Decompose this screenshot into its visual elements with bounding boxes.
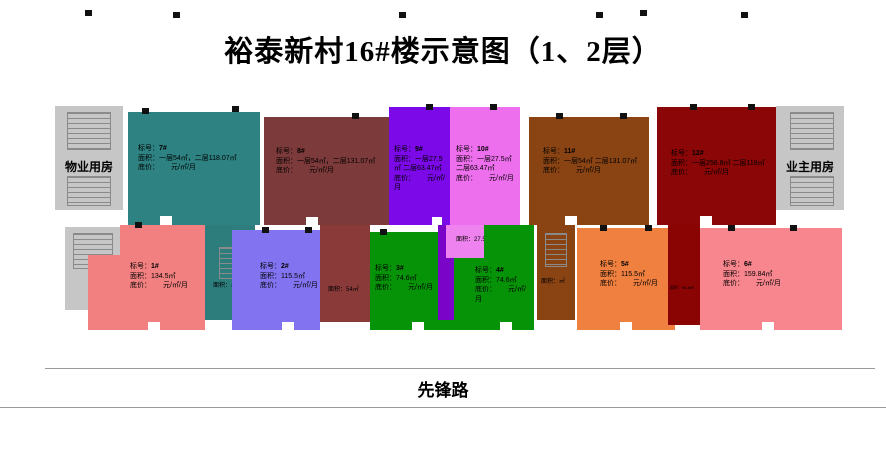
unit-id: 3#: [396, 265, 404, 272]
strip-area: ㎡: [559, 279, 565, 285]
unit-price-label: 底价：: [671, 169, 692, 176]
unit-area-label: 面积：: [723, 271, 744, 278]
unit-id: 10#: [477, 146, 489, 153]
window-mark: [135, 222, 142, 228]
window-mark: [85, 10, 92, 16]
unit-area: 一层54㎡，二层131.07㎡: [297, 158, 375, 165]
unit-price: 元/㎡/月: [408, 284, 433, 291]
unit-price: 元/㎡/月: [576, 167, 601, 174]
unit-block-2: 标号：2# 面积：115.5㎡ 底价：元/㎡/月: [232, 230, 320, 330]
unit-price-label: 底价：: [260, 282, 281, 289]
unit-area-label: 面积：: [138, 155, 159, 162]
unit-block-1-upper: [120, 225, 205, 257]
unit-id: 1#: [151, 263, 159, 270]
window-mark: [640, 10, 647, 16]
unit-block-7: 标号：7# 面积：一层54㎡，二层118.07㎡ 底价：元/㎡/月: [128, 112, 260, 225]
unit-price: 元/㎡/月: [633, 280, 658, 287]
window-mark: [305, 227, 312, 233]
unit-area: 74.6㎡: [496, 277, 517, 284]
window-mark: [748, 104, 755, 110]
window-mark: [596, 12, 603, 18]
door-opening: [306, 217, 318, 225]
owner-room-label: 业主用房: [776, 158, 844, 175]
unit-price-label: 底价：: [456, 175, 477, 182]
unit-price-label: 底价：: [723, 280, 744, 287]
window-mark: [490, 104, 497, 110]
door-opening: [565, 216, 577, 225]
unit-id: 7#: [159, 145, 167, 152]
window-mark: [142, 108, 149, 114]
unit-block-8: 标号：8# 面积：一层54㎡，二层131.07㎡ 底价：元/㎡/月: [264, 117, 390, 225]
unit-area-label: 面积：: [475, 277, 496, 284]
window-mark: [620, 113, 627, 119]
unit-block-12: 标号：12# 面积：一层256.8㎡ 二层118㎡ 底价：元/㎡/月: [657, 107, 776, 225]
door-opening: [148, 322, 160, 330]
unit-area: 74.6㎡: [396, 275, 417, 282]
unit-id: 9#: [415, 146, 423, 153]
area-strip-2-3: 面积：54㎡: [320, 225, 370, 322]
window-mark: [352, 113, 359, 119]
unit-block-11: 标号：11# 面积：一层54㎡ 二层131.07㎡ 底价：元/㎡/月: [529, 117, 649, 225]
unit-area-label: 面积：: [456, 156, 477, 163]
unit-id-label: 标号：: [394, 146, 415, 153]
unit-block-10: 标号：10# 面积：一层27.5㎡ 二层63.47㎡ 底价：元/㎡/月: [450, 107, 520, 225]
unit-block-1: 标号：1# 面积：134.5㎡ 底价：元/㎡/月: [88, 255, 205, 330]
door-opening: [160, 216, 172, 225]
unit-price: 元/㎡/月: [704, 169, 729, 176]
stairs-icon: [67, 176, 111, 206]
door-opening: [432, 217, 442, 225]
unit-area: 一层54㎡，二层118.07㎡: [159, 155, 237, 162]
unit-block-4: 标号：4# 面积：74.6㎡ 底价：元/㎡/月: [456, 258, 534, 330]
unit-id-label: 标号：: [475, 267, 496, 274]
unit-price-label: 底价：: [138, 164, 159, 171]
window-mark: [426, 104, 433, 110]
unit-price-label: 底价：: [375, 284, 396, 291]
window-mark: [232, 106, 239, 112]
owner-room-block: 业主用房: [776, 106, 844, 210]
window-mark: [741, 12, 748, 18]
unit-id-label: 标号：: [260, 263, 281, 270]
unit-price-label: 底价：: [276, 167, 297, 174]
area-strip-4-5: 面积：㎡: [537, 225, 575, 320]
unit-area-label: 面积：: [130, 273, 151, 280]
unit-id: 6#: [744, 261, 752, 268]
unit-area: 一层54㎡ 二层131.07㎡: [564, 158, 637, 165]
unit-price: 元/㎡/月: [756, 280, 781, 287]
unit-id-label: 标号：: [138, 145, 159, 152]
door-opening: [700, 216, 712, 225]
window-mark: [690, 104, 697, 110]
unit-area-label: 面积：: [671, 160, 692, 167]
property-room-block: 物业用房: [55, 106, 123, 210]
window-mark: [728, 225, 735, 231]
floorplan-canvas: 裕泰新村16#楼示意图（1、2层） 物业用房 标号：7# 面积：一层54㎡，二层…: [0, 0, 886, 451]
strip-area: 54㎡: [346, 287, 359, 293]
window-mark: [645, 225, 652, 231]
unit-block-6: 标号：6# 面积：159.84㎡ 底价：元/㎡/月: [700, 228, 842, 330]
unit-id-label: 标号：: [600, 261, 621, 268]
unit-id-label: 标号：: [276, 148, 297, 155]
unit-id-label: 标号：: [375, 265, 396, 272]
unit-area: 159.84㎡: [744, 271, 772, 278]
stairs-icon: [790, 176, 834, 206]
area-strip-5-6: 面积：96.8㎡: [668, 225, 700, 325]
road-line-bottom: [0, 407, 886, 408]
unit-id: 4#: [496, 267, 504, 274]
strip-area: 96.8㎡: [682, 286, 694, 291]
window-mark: [600, 225, 607, 231]
unit-price: 元/㎡/月: [293, 282, 318, 289]
window-mark: [173, 12, 180, 18]
unit-id: 11#: [564, 148, 575, 155]
strip-area-label: 面积：: [456, 237, 474, 243]
unit-block-9: 标号：9# 面积：一层27.5㎡ 二层63.47㎡ 底价：元/㎡/月: [389, 107, 450, 225]
strip-area-label: 面积：: [328, 287, 346, 293]
unit-id-label: 标号：: [543, 148, 564, 155]
door-opening: [620, 322, 632, 330]
unit-area: 115.5㎡: [621, 271, 645, 278]
unit-price: 元/㎡/月: [489, 175, 514, 182]
unit-area: 134.5㎡: [151, 273, 176, 280]
property-room-label: 物业用房: [55, 158, 123, 175]
unit-id-label: 标号：: [456, 146, 477, 153]
road-label: 先锋路: [0, 376, 886, 401]
strip-area-label: 面积：: [213, 283, 231, 289]
unit-price-label: 底价：: [394, 175, 415, 182]
door-opening: [762, 322, 774, 330]
unit-id-label: 标号：: [723, 261, 744, 268]
unit-area-label: 面积：: [394, 156, 415, 163]
unit-price: 元/㎡/月: [309, 167, 334, 174]
unit-area-label: 面积：: [375, 275, 396, 282]
unit-id: 8#: [297, 148, 305, 155]
page-title: 裕泰新村16#楼示意图（1、2层）: [0, 28, 886, 70]
unit-id: 2#: [281, 263, 289, 270]
stairs-icon: [67, 112, 111, 150]
window-mark: [399, 12, 406, 18]
unit-area: 115.5㎡: [281, 273, 305, 280]
unit-id: 5#: [621, 261, 629, 268]
unit-area-label: 面积：: [600, 271, 621, 278]
door-opening: [282, 322, 294, 330]
road-line-top: [45, 368, 875, 369]
window-mark: [556, 113, 563, 119]
strip-area-label: 面积：: [541, 279, 559, 285]
unit-area: 一层256.8㎡ 二层118㎡: [692, 160, 765, 167]
window-mark: [380, 229, 387, 235]
unit-area-label: 面积：: [260, 273, 281, 280]
door-opening: [500, 322, 512, 330]
door-opening: [412, 322, 424, 330]
window-mark: [262, 227, 269, 233]
unit-block-5: 标号：5# 面积：115.5㎡ 底价：元/㎡/月: [577, 228, 675, 330]
unit-area-label: 面积：: [276, 158, 297, 165]
unit-price: 元/㎡/月: [163, 282, 188, 289]
unit-area-label: 面积：: [543, 158, 564, 165]
strip-area-label: 面积：: [670, 286, 682, 291]
unit-id: 12#: [692, 150, 704, 157]
unit-price-label: 底价：: [543, 167, 564, 174]
stairs-icon: [545, 233, 567, 267]
unit-price-label: 底价：: [600, 280, 621, 287]
unit-price: 元/㎡/月: [171, 164, 196, 171]
unit-price-label: 底价：: [475, 286, 496, 293]
unit-id-label: 标号：: [671, 150, 692, 157]
window-mark: [790, 225, 797, 231]
stairs-icon: [790, 112, 834, 150]
unit-id-label: 标号：: [130, 263, 151, 270]
unit-price-label: 底价：: [130, 282, 151, 289]
